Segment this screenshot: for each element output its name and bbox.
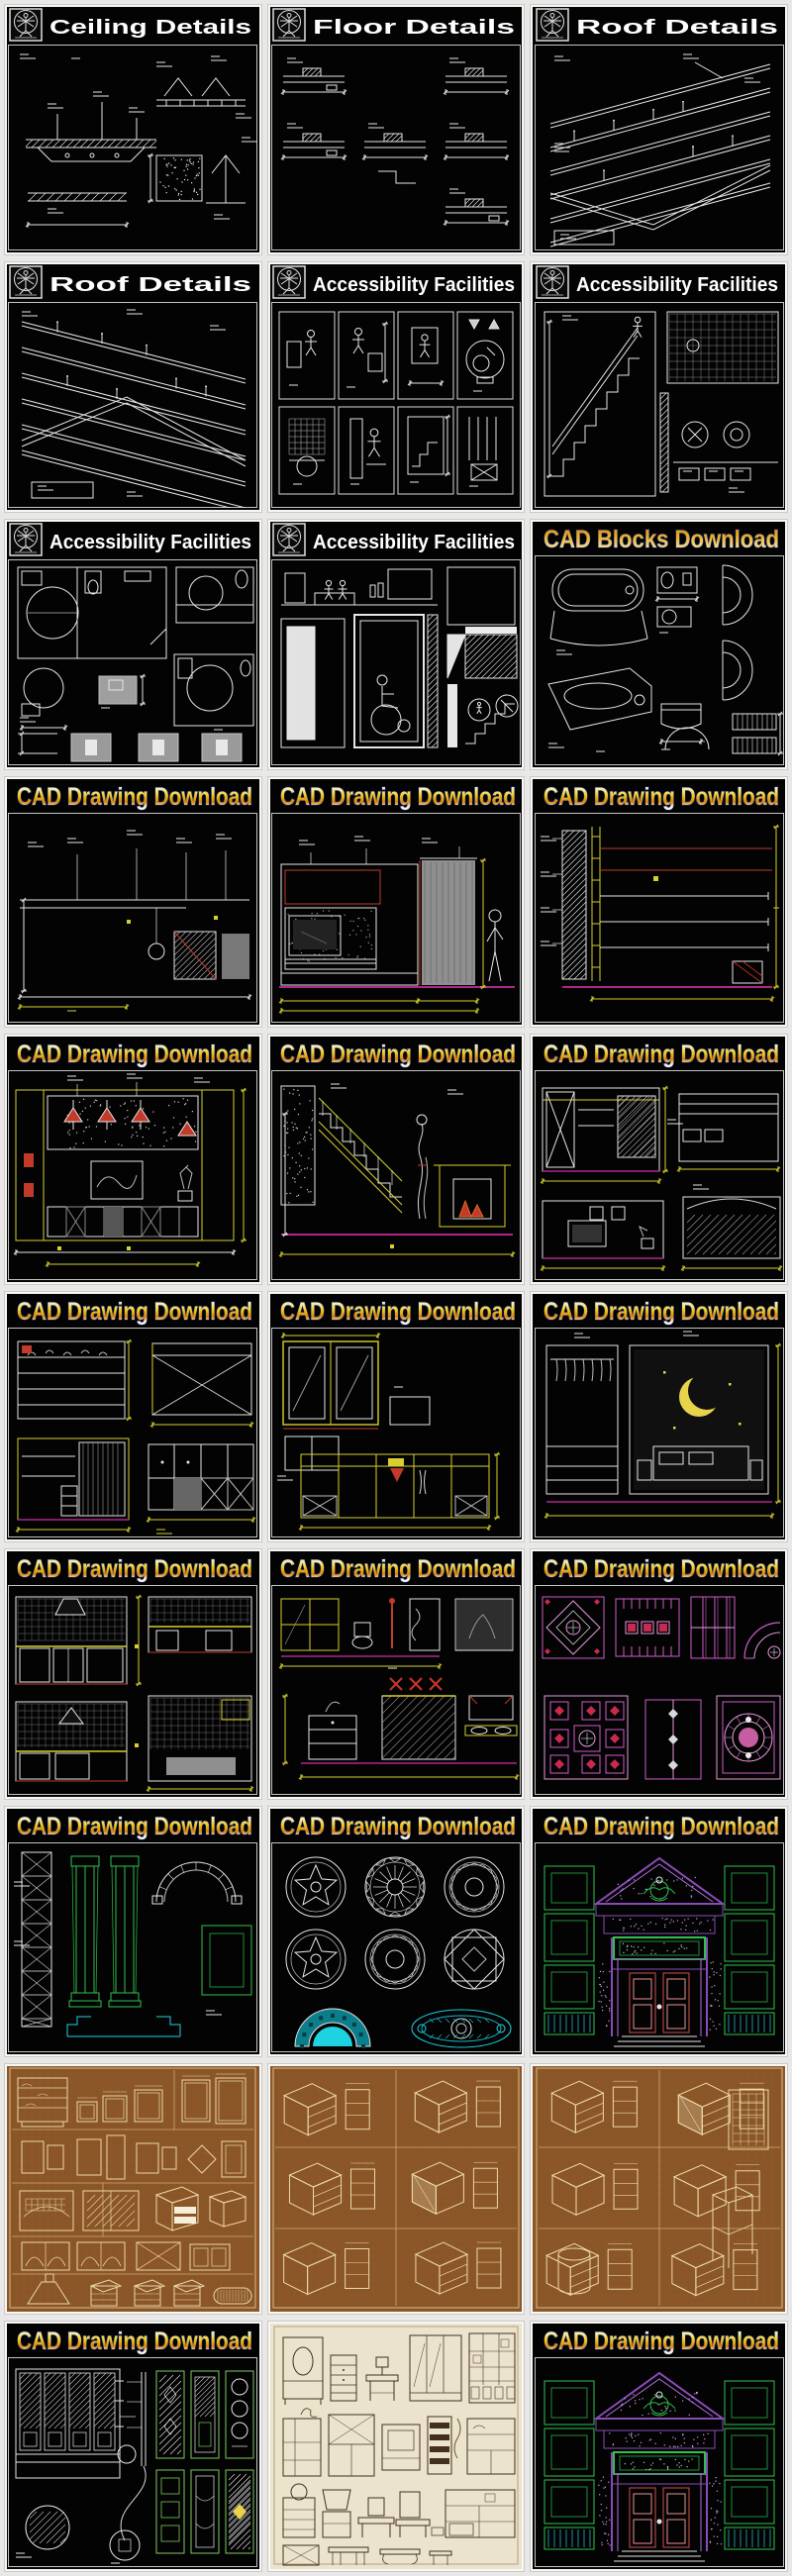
thumbnail-tile: CAD Drawing DownloadCAD Drawing Download — [533, 1294, 785, 1539]
thumbnail-tile: Roof Details — [533, 7, 785, 252]
thumbnail-header: CAD Drawing DownloadCAD Drawing Download — [535, 1294, 784, 1328]
thumbnail-title: Accessibility Facilities — [313, 532, 515, 553]
thumbnail-header: CAD Drawing DownloadCAD Drawing Download — [271, 1551, 521, 1585]
cad-thumbnail-accessibility-facilities[interactable]: Accessibility Facilities — [4, 519, 262, 770]
cad-thumbnail-accessibility-facilities[interactable]: Accessibility Facilities — [267, 519, 526, 770]
thumbnail-header: CAD Drawing DownloadCAD Drawing Download — [535, 1809, 784, 1842]
thumbnail-tile: Accessibility Facilities — [270, 264, 523, 510]
cad-thumbnail-cad-drawing-download[interactable]: CAD Drawing DownloadCAD Drawing Download — [530, 1291, 788, 1542]
thumbnail-title: CAD Drawing Download — [544, 783, 779, 811]
art-columns — [8, 1842, 257, 2052]
art-facade2 — [535, 2357, 784, 2567]
thumbnail-header: CAD Drawing DownloadCAD Drawing Download — [8, 1037, 257, 1070]
thumbnail-title: Accessibility Facilities — [576, 274, 778, 296]
thumbnail-tile: CAD Drawing DownloadCAD Drawing Download — [270, 1809, 523, 2054]
thumbnail-title: Ceiling Details — [49, 17, 251, 39]
cad-thumbnail-browniso[interactable] — [267, 2063, 526, 2315]
thumbnail-header: CAD Drawing DownloadCAD Drawing Download — [8, 1809, 257, 1842]
thumbnail-title: CAD Blocks Download — [544, 526, 779, 553]
art-lattice — [8, 2357, 257, 2567]
thumbnail-grid: Ceiling DetailsFloor DetailsRoof Details… — [0, 0, 792, 2576]
thumbnail-tile: CAD Drawing DownloadCAD Drawing Download — [533, 2324, 785, 2569]
architect-logo-icon — [10, 9, 42, 41]
thumbnail-title: CAD Drawing Download — [544, 1040, 779, 1068]
cad-thumbnail-roof-details[interactable]: Roof Details — [530, 4, 788, 255]
thumbnail-header: CAD Drawing DownloadCAD Drawing Download — [271, 1809, 521, 1842]
cad-thumbnail-cad-drawing-download[interactable]: CAD Drawing DownloadCAD Drawing Download — [4, 1548, 262, 1800]
architect-logo-icon — [10, 524, 42, 555]
thumbnail-title: Accessibility Facilities — [49, 532, 251, 553]
cad-thumbnail-roof-details[interactable]: Roof Details — [4, 261, 262, 513]
thumbnail-tile: CAD Drawing DownloadCAD Drawing Download — [270, 1294, 523, 1539]
thumbnail-header: Accessibility Facilities — [535, 264, 784, 302]
art-elevBedroom — [535, 1070, 784, 1280]
thumbnail-tile: CAD Drawing DownloadCAD Drawing Download — [7, 1551, 259, 1797]
thumbnail-title: CAD Drawing Download — [280, 783, 516, 811]
thumbnail-header: Accessibility Facilities — [271, 264, 521, 302]
cad-thumbnail-cad-drawing-download[interactable]: CAD Drawing DownloadCAD Drawing Download — [267, 776, 526, 1028]
art-elevWardrobe — [271, 1328, 521, 1537]
thumbnail-header: CAD Drawing DownloadCAD Drawing Download — [8, 779, 257, 813]
thumbnail-tile: Accessibility Facilities — [533, 264, 785, 510]
cad-thumbnail-cad-drawing-download[interactable]: CAD Drawing DownloadCAD Drawing Download — [530, 1548, 788, 1800]
art-accessStairs — [535, 302, 784, 508]
art-facade — [535, 1842, 784, 2052]
art-accessLift — [271, 559, 521, 765]
thumbnail-header: CAD Drawing DownloadCAD Drawing Download — [535, 1037, 784, 1070]
art-ceilingPlans — [535, 1585, 784, 1795]
art-elevMoon — [535, 1328, 784, 1537]
thumbnail-title: CAD Drawing Download — [280, 1040, 516, 1068]
thumbnail-title: CAD Drawing Download — [280, 1298, 516, 1326]
cad-thumbnail-cad-drawing-download[interactable]: CAD Drawing DownloadCAD Drawing Download — [530, 776, 788, 1028]
cad-thumbnail-furnituresheet[interactable] — [267, 2321, 526, 2572]
thumbnail-title: CAD Drawing Download — [544, 2328, 779, 2355]
thumbnail-tile — [7, 2066, 259, 2312]
cad-thumbnail-floor-details[interactable]: Floor Details — [267, 4, 526, 255]
architect-logo-icon — [273, 9, 305, 41]
architect-logo-icon — [537, 266, 568, 298]
thumbnail-tile: CAD Drawing DownloadCAD Drawing Download — [7, 2324, 259, 2569]
architect-logo-icon — [273, 524, 305, 555]
art-accessPanels — [271, 302, 521, 508]
art-blocks — [535, 555, 784, 765]
thumbnail-header: Ceiling Details — [8, 7, 257, 45]
art-medallions — [271, 1842, 521, 2052]
thumbnail-tile — [270, 2324, 523, 2569]
thumbnail-title: Roof Details — [576, 17, 778, 39]
cad-thumbnail-cad-drawing-download[interactable]: CAD Drawing DownloadCAD Drawing Download — [530, 2321, 788, 2572]
thumbnail-title: CAD Drawing Download — [280, 1813, 516, 1840]
thumbnail-title: Roof Details — [49, 274, 251, 296]
thumbnail-title: CAD Drawing Download — [17, 1298, 252, 1326]
architect-logo-icon — [273, 266, 305, 298]
thumbnail-tile: CAD Drawing DownloadCAD Drawing Download — [533, 1037, 785, 1282]
thumbnail-title: Accessibility Facilities — [313, 274, 515, 296]
thumbnail-header: Roof Details — [535, 7, 784, 45]
thumbnail-tile: CAD Drawing DownloadCAD Drawing Download — [533, 1551, 785, 1797]
thumbnail-header: Accessibility Facilities — [8, 522, 257, 559]
thumbnail-tile — [270, 2066, 523, 2312]
thumbnail-title: Floor Details — [313, 17, 515, 39]
thumbnail-title: CAD Drawing Download — [544, 1298, 779, 1326]
thumbnail-title: CAD Drawing Download — [17, 2328, 252, 2355]
cad-thumbnail-ceiling-details[interactable]: Ceiling Details — [4, 4, 262, 255]
art-stairHall — [271, 1070, 521, 1280]
thumbnail-tile — [533, 2066, 785, 2312]
thumbnail-header: CAD Drawing DownloadCAD Drawing Download — [271, 1294, 521, 1328]
cad-thumbnail-accessibility-facilities[interactable]: Accessibility Facilities — [530, 261, 788, 513]
thumbnail-title: CAD Drawing Download — [17, 1040, 252, 1068]
thumbnail-tile: Roof Details — [7, 264, 259, 510]
cad-thumbnail-cad-drawing-download[interactable]: CAD Drawing DownloadCAD Drawing Download — [267, 1548, 526, 1800]
thumbnail-title: CAD Drawing Download — [544, 1555, 779, 1583]
thumbnail-header: CAD Drawing DownloadCAD Drawing Download — [535, 779, 784, 813]
thumbnail-title: CAD Drawing Download — [17, 783, 252, 811]
thumbnail-header: CAD Drawing DownloadCAD Drawing Download — [271, 1037, 521, 1070]
thumbnail-title: CAD Drawing Download — [17, 1813, 252, 1840]
cad-thumbnail-cad-drawing-download[interactable]: CAD Drawing DownloadCAD Drawing Download — [4, 1034, 262, 1285]
thumbnail-header: CAD Drawing DownloadCAD Drawing Download — [8, 1551, 257, 1585]
thumbnail-tile: CAD Drawing DownloadCAD Drawing Download — [7, 779, 259, 1025]
art-brownCabinets — [8, 2066, 257, 2310]
thumbnail-header: CAD Blocks DownloadCAD Blocks Download — [535, 522, 784, 555]
cad-thumbnail-cad-drawing-download[interactable]: CAD Drawing DownloadCAD Drawing Download — [530, 1034, 788, 1285]
thumbnail-header: CAD Drawing DownloadCAD Drawing Download — [535, 1551, 784, 1585]
art-elevSection — [535, 813, 784, 1023]
cad-thumbnail-browncabinets[interactable] — [4, 2063, 262, 2315]
thumbnail-title: CAD Drawing Download — [544, 1813, 779, 1840]
thumbnail-header: CAD Drawing DownloadCAD Drawing Download — [271, 779, 521, 813]
thumbnail-tile: CAD Drawing DownloadCAD Drawing Download — [270, 779, 523, 1025]
thumbnail-header: Accessibility Facilities — [271, 522, 521, 559]
thumbnail-header: CAD Drawing DownloadCAD Drawing Download — [535, 2324, 784, 2357]
thumbnail-tile: Accessibility Facilities — [270, 522, 523, 767]
thumbnail-title: CAD Drawing Download — [280, 1555, 516, 1583]
art-accessPlan — [8, 559, 257, 765]
thumbnail-tile: CAD Drawing DownloadCAD Drawing Download — [7, 1809, 259, 2054]
art-ceiling — [8, 45, 257, 250]
thumbnail-header: CAD Drawing DownloadCAD Drawing Download — [8, 1294, 257, 1328]
thumbnail-tile: CAD Drawing DownloadCAD Drawing Download — [7, 1037, 259, 1282]
thumbnail-header: CAD Drawing DownloadCAD Drawing Download — [8, 2324, 257, 2357]
art-brownIso2 — [535, 2066, 784, 2310]
cad-thumbnail-cad-drawing-download[interactable]: CAD Drawing DownloadCAD Drawing Download — [4, 1291, 262, 1542]
thumbnail-tile: CAD Drawing DownloadCAD Drawing Download — [270, 1037, 523, 1282]
thumbnail-header: Roof Details — [8, 264, 257, 302]
art-bathroom — [271, 1585, 521, 1795]
cad-thumbnail-cad-drawing-download[interactable]: CAD Drawing DownloadCAD Drawing Download — [267, 1806, 526, 2057]
art-elevLamps — [8, 1070, 257, 1280]
art-elevCabinets — [8, 1328, 257, 1537]
thumbnail-tile: CAD Drawing DownloadCAD Drawing Download — [270, 1551, 523, 1797]
thumbnail-header: Floor Details — [271, 7, 521, 45]
art-furnitureSheet — [271, 2324, 521, 2567]
art-elevTV — [271, 813, 521, 1023]
thumbnail-title: CAD Drawing Download — [17, 1555, 252, 1583]
art-elevSparse — [8, 813, 257, 1023]
thumbnail-tile: CAD Drawing DownloadCAD Drawing Download — [533, 1809, 785, 2054]
thumbnail-tile: CAD Drawing DownloadCAD Drawing Download — [7, 1294, 259, 1539]
cad-thumbnail-cad-drawing-download[interactable]: CAD Drawing DownloadCAD Drawing Download — [267, 1034, 526, 1285]
architect-logo-icon — [10, 266, 42, 298]
art-roofIso — [535, 45, 784, 250]
thumbnail-tile: CAD Drawing DownloadCAD Drawing Download — [533, 779, 785, 1025]
cad-thumbnail-cad-drawing-download[interactable]: CAD Drawing DownloadCAD Drawing Download — [4, 1806, 262, 2057]
cad-thumbnail-cad-drawing-download[interactable]: CAD Drawing DownloadCAD Drawing Download — [267, 1291, 526, 1542]
architect-logo-icon — [537, 9, 568, 41]
cad-thumbnail-accessibility-facilities[interactable]: Accessibility Facilities — [267, 261, 526, 513]
cad-thumbnail-cad-drawing-download[interactable]: CAD Drawing DownloadCAD Drawing Download — [4, 2321, 262, 2572]
cad-thumbnail-browniso2[interactable] — [530, 2063, 788, 2315]
thumbnail-tile: Floor Details — [270, 7, 523, 252]
cad-thumbnail-cad-drawing-download[interactable]: CAD Drawing DownloadCAD Drawing Download — [530, 1806, 788, 2057]
art-kitchen — [8, 1585, 257, 1795]
art-roofIso2 — [8, 302, 257, 508]
thumbnail-tile: Ceiling Details — [7, 7, 259, 252]
cad-thumbnail-cad-blocks-download[interactable]: CAD Blocks DownloadCAD Blocks Download — [530, 519, 788, 770]
cad-thumbnail-cad-drawing-download[interactable]: CAD Drawing DownloadCAD Drawing Download — [4, 776, 262, 1028]
art-floor — [271, 45, 521, 250]
thumbnail-tile: Accessibility Facilities — [7, 522, 259, 767]
art-brownIso — [271, 2066, 521, 2310]
thumbnail-tile: CAD Blocks DownloadCAD Blocks Download — [533, 522, 785, 767]
